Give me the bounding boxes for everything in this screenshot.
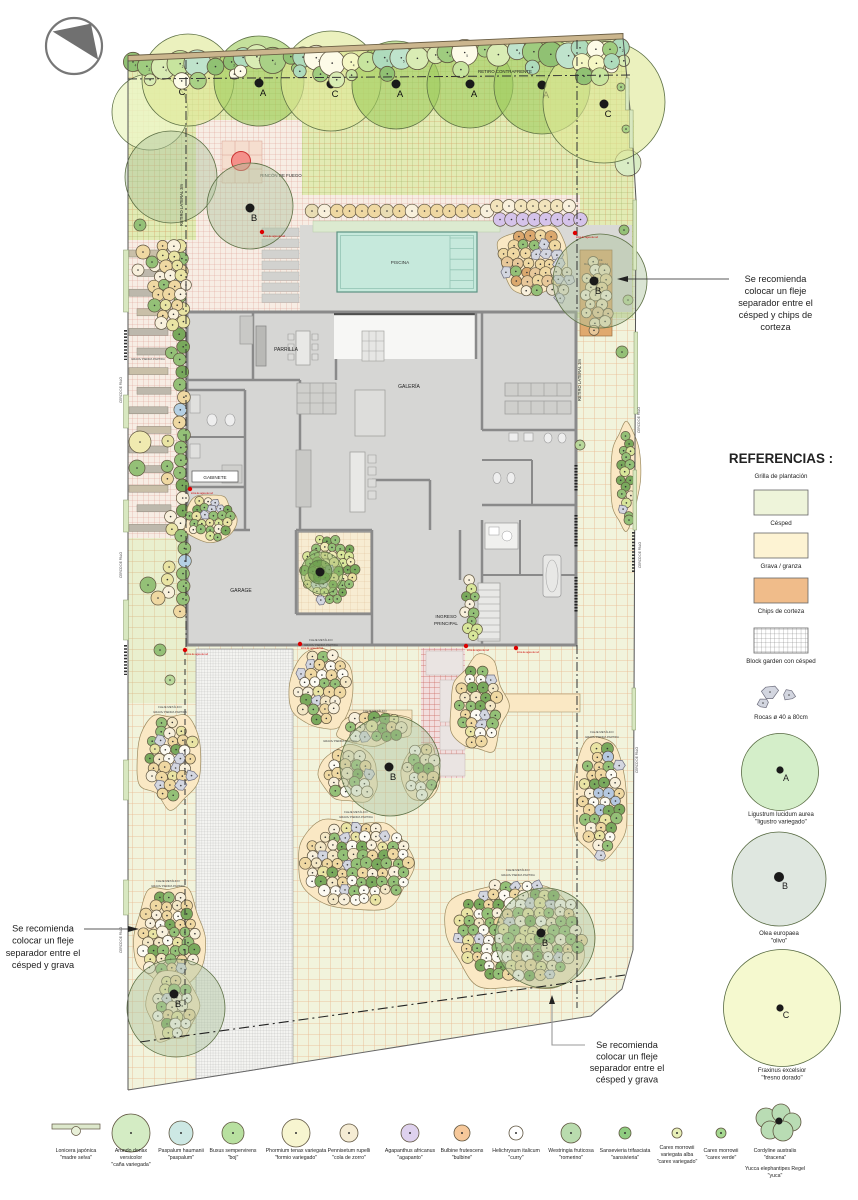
svg-text:PARRILLA: PARRILLA xyxy=(274,347,298,353)
svg-text:"carex verde": "carex verde" xyxy=(706,1155,737,1161)
svg-text:CERCO DE PALO: CERCO DE PALO xyxy=(637,406,641,432)
svg-text:4: 4 xyxy=(519,52,521,56)
svg-text:"cola de zorro": "cola de zorro" xyxy=(332,1155,366,1161)
svg-text:colocar un fleje: colocar un fleje xyxy=(596,1052,658,1062)
svg-text:toma de agua de red: toma de agua de red xyxy=(576,236,599,239)
svg-text:Carex morrowii: Carex morrowii xyxy=(704,1148,739,1154)
svg-text:GRAVA/ PIEDRA PARTIDA: GRAVA/ PIEDRA PARTIDA xyxy=(339,815,373,819)
svg-text:Yucca elephantipes Regel: Yucca elephantipes Regel xyxy=(745,1166,805,1172)
svg-text:B: B xyxy=(542,938,548,949)
svg-text:C: C xyxy=(605,109,612,120)
svg-text:Bulbine frutescens: Bulbine frutescens xyxy=(441,1148,484,1154)
svg-text:Phormium tenax variegata: Phormium tenax variegata xyxy=(266,1148,327,1154)
svg-text:C: C xyxy=(783,1010,790,1020)
svg-text:"madre selva": "madre selva" xyxy=(60,1155,92,1161)
svg-text:Sansevieria trifasciata: Sansevieria trifasciata xyxy=(600,1148,651,1154)
svg-text:separador entre el: separador entre el xyxy=(738,298,813,308)
svg-text:"olivo": "olivo" xyxy=(771,939,788,945)
svg-text:césped y grava: césped y grava xyxy=(596,1075,659,1085)
svg-text:Agapanthus africanus: Agapanthus africanus xyxy=(385,1148,436,1154)
svg-text:"agapanto": "agapanto" xyxy=(397,1155,422,1161)
svg-text:GRAVA/ PIEDRA PARTIDA: GRAVA/ PIEDRA PARTIDA xyxy=(501,873,535,877)
svg-text:Se recomienda: Se recomienda xyxy=(745,274,808,284)
svg-text:Chips de corteza: Chips de corteza xyxy=(758,608,805,615)
svg-text:4: 4 xyxy=(274,62,276,66)
svg-text:B: B xyxy=(175,999,181,1010)
svg-text:2: 2 xyxy=(622,49,624,53)
svg-text:Grilla de plantación: Grilla de plantación xyxy=(755,473,809,480)
svg-text:A: A xyxy=(397,89,404,100)
svg-text:B: B xyxy=(251,213,257,224)
svg-text:Lonicera japónica: Lonicera japónica xyxy=(56,1148,97,1154)
svg-text:Helichrysum italicum: Helichrysum italicum xyxy=(492,1148,540,1154)
svg-text:Buxus sempervirens: Buxus sempervirens xyxy=(210,1148,257,1154)
svg-text:"caña variegada": "caña variegada" xyxy=(111,1162,150,1168)
svg-text:A: A xyxy=(783,773,789,783)
svg-text:B: B xyxy=(390,772,396,783)
svg-text:4: 4 xyxy=(353,64,355,68)
svg-text:Césped: Césped xyxy=(770,520,792,527)
svg-text:toma de agua de red: toma de agua de red xyxy=(191,492,214,495)
svg-text:"formio variegado": "formio variegado" xyxy=(275,1155,317,1161)
svg-text:FLEJE METÁLICO: FLEJE METÁLICO xyxy=(506,868,530,872)
svg-text:RETIRO LATERAL 3m: RETIRO LATERAL 3m xyxy=(179,183,184,226)
svg-text:Se recomienda: Se recomienda xyxy=(596,1040,659,1050)
svg-text:toma de agua de red: toma de agua de red xyxy=(186,653,209,656)
svg-text:FLEJE METÁLICO: FLEJE METÁLICO xyxy=(590,730,614,734)
svg-text:4: 4 xyxy=(165,69,167,73)
svg-text:colocar un fleje: colocar un fleje xyxy=(745,286,807,296)
svg-text:5: 5 xyxy=(386,59,388,63)
svg-text:GARAGE: GARAGE xyxy=(230,588,252,594)
svg-text:toma de agua de red: toma de agua de red xyxy=(517,651,540,654)
svg-text:Rocas ø 40 a 80cm: Rocas ø 40 a 80cm xyxy=(754,714,808,721)
svg-text:REFERENCIAS :: REFERENCIAS : xyxy=(729,451,833,466)
svg-text:separador entre el: separador entre el xyxy=(6,948,81,958)
svg-text:FLEJE METÁLICO: FLEJE METÁLICO xyxy=(309,638,333,642)
svg-text:A: A xyxy=(260,88,267,99)
svg-text:GRAVA/ PIEDRA PARTIDA: GRAVA/ PIEDRA PARTIDA xyxy=(151,884,185,888)
svg-text:Fraxinus excelsior: Fraxinus excelsior xyxy=(758,1068,806,1074)
svg-text:"fresno dorado": "fresno dorado" xyxy=(761,1076,802,1082)
svg-text:GRAVA/ PIEDRA PARTIDA: GRAVA/ PIEDRA PARTIDA xyxy=(153,710,187,714)
svg-text:CERCO DE PALO: CERCO DE PALO xyxy=(638,541,642,567)
svg-text:4: 4 xyxy=(449,54,451,58)
svg-text:CERCO DE PALO: CERCO DE PALO xyxy=(635,746,639,772)
svg-text:césped y chips de: césped y chips de xyxy=(739,310,813,320)
svg-text:"boj": "boj" xyxy=(228,1155,239,1161)
svg-text:5: 5 xyxy=(403,59,405,63)
svg-text:Block garden con césped: Block garden con césped xyxy=(746,658,816,665)
svg-text:B: B xyxy=(782,881,788,891)
svg-text:C: C xyxy=(332,89,339,100)
svg-text:variegata alba: variegata alba xyxy=(661,1152,694,1158)
svg-text:Paspalum haumanii: Paspalum haumanii xyxy=(158,1148,204,1154)
svg-text:Westringia fruticosa: Westringia fruticosa xyxy=(548,1148,594,1154)
svg-text:toma de agua de red: toma de agua de red xyxy=(467,649,490,652)
svg-text:2: 2 xyxy=(182,65,184,69)
svg-text:CERCO DE PALO: CERCO DE PALO xyxy=(119,551,123,577)
svg-text:GRAVA/ PIEDRA PARTIDA: GRAVA/ PIEDRA PARTIDA xyxy=(585,735,619,739)
svg-text:GABINETE: GABINETE xyxy=(203,475,226,480)
svg-text:Grava / granza: Grava / granza xyxy=(761,563,802,570)
svg-text:"bulbine": "bulbine" xyxy=(452,1155,473,1161)
svg-text:RETIRO CONTRAFRENTE: RETIRO CONTRAFRENTE xyxy=(478,69,532,74)
svg-text:"romerino": "romerino" xyxy=(559,1155,583,1161)
svg-text:GALERÍA: GALERÍA xyxy=(398,383,420,390)
svg-text:FLEJE METÁLICO: FLEJE METÁLICO xyxy=(344,810,368,814)
svg-text:FLEJE METÁLICO: FLEJE METÁLICO xyxy=(156,879,180,883)
svg-text:FLEJE METÁLICO: FLEJE METÁLICO xyxy=(158,705,182,709)
svg-text:Carex morrowii: Carex morrowii xyxy=(660,1145,695,1151)
svg-text:Se recomienda: Se recomienda xyxy=(12,924,75,934)
svg-text:PISCINA: PISCINA xyxy=(391,260,410,265)
svg-text:toma de agua de red: toma de agua de red xyxy=(263,235,286,238)
svg-text:CERCO DE PALO: CERCO DE PALO xyxy=(119,376,123,402)
svg-text:RETIRO LATERAL 3m: RETIRO LATERAL 3m xyxy=(577,358,582,401)
svg-text:INGRESO: INGRESO xyxy=(435,614,457,619)
svg-text:corteza: corteza xyxy=(760,322,791,332)
svg-text:"ligustro variegado": "ligustro variegado" xyxy=(755,820,807,826)
svg-text:GRAVA/ PIEDRA PARTIDA: GRAVA/ PIEDRA PARTIDA xyxy=(131,357,165,361)
svg-text:5: 5 xyxy=(466,54,468,58)
svg-text:"carex variegado": "carex variegado" xyxy=(657,1159,698,1165)
svg-text:"dracena": "dracena" xyxy=(764,1155,787,1161)
svg-text:"yuca": "yuca" xyxy=(768,1173,783,1179)
svg-text:"sansivieria": "sansivieria" xyxy=(611,1155,639,1161)
svg-text:toma de agua de red: toma de agua de red xyxy=(301,647,324,650)
svg-text:PRINCIPAL: PRINCIPAL xyxy=(434,621,458,626)
svg-text:"curry": "curry" xyxy=(508,1155,523,1161)
svg-text:Cordyline australis: Cordyline australis xyxy=(754,1148,797,1154)
svg-text:colocar un fleje: colocar un fleje xyxy=(12,936,74,946)
svg-text:Ligustrum lucidum aurea: Ligustrum lucidum aurea xyxy=(748,812,814,818)
svg-text:versicolor: versicolor xyxy=(120,1155,142,1161)
svg-text:4: 4 xyxy=(135,63,137,67)
svg-text:B: B xyxy=(595,286,601,297)
svg-text:Pennisetum rupelli: Pennisetum rupelli xyxy=(328,1148,371,1154)
svg-text:Olea europaea: Olea europaea xyxy=(759,931,799,937)
svg-text:césped y grava: césped y grava xyxy=(12,960,75,970)
svg-text:2: 2 xyxy=(148,68,150,72)
svg-text:separador entre el: separador entre el xyxy=(590,1063,665,1073)
svg-text:CERCO DE PALO: CERCO DE PALO xyxy=(119,926,123,952)
svg-text:FLEJE METÁLICO: FLEJE METÁLICO xyxy=(363,709,387,713)
svg-text:A: A xyxy=(471,89,478,100)
svg-text:Arundo donax: Arundo donax xyxy=(115,1148,148,1154)
svg-text:3: 3 xyxy=(233,63,235,67)
svg-text:"paspalum": "paspalum" xyxy=(168,1155,194,1161)
